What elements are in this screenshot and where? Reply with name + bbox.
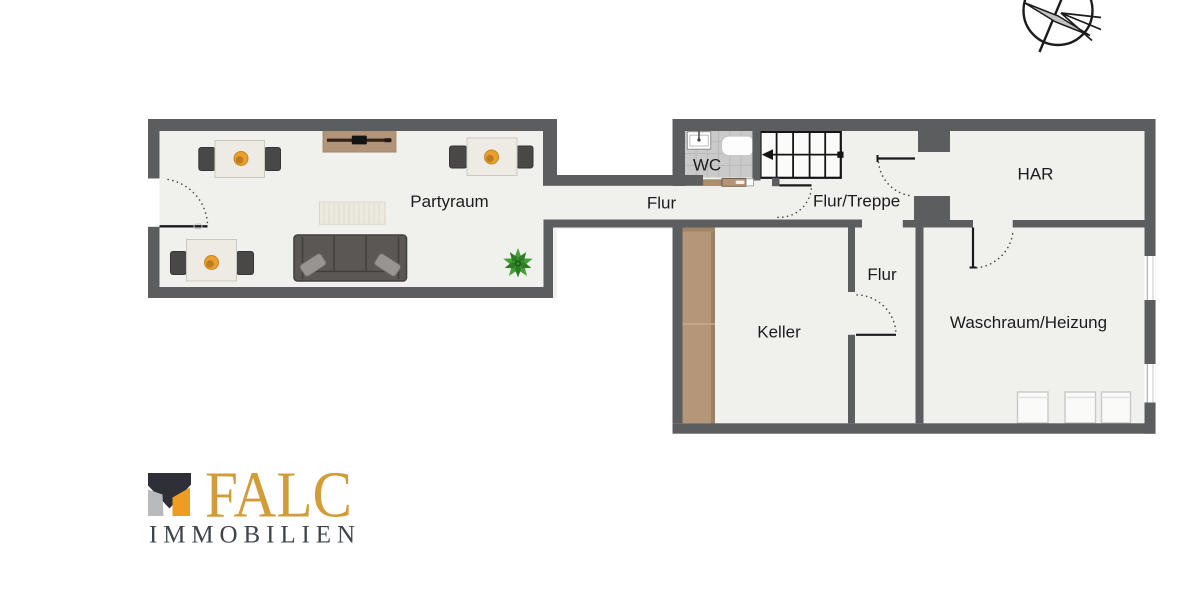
svg-text:HAR: HAR xyxy=(1018,165,1054,184)
svg-text:Flur: Flur xyxy=(867,265,897,284)
svg-text:Keller: Keller xyxy=(757,323,801,342)
svg-text:Waschraum/Heizung: Waschraum/Heizung xyxy=(950,313,1107,332)
svg-text:Flur: Flur xyxy=(647,194,677,213)
svg-text:Flur/Treppe: Flur/Treppe xyxy=(813,192,900,211)
svg-text:Partyraum: Partyraum xyxy=(410,192,488,211)
svg-text:IMMOBILIEN: IMMOBILIEN xyxy=(149,522,355,549)
svg-text:WC: WC xyxy=(693,156,721,175)
